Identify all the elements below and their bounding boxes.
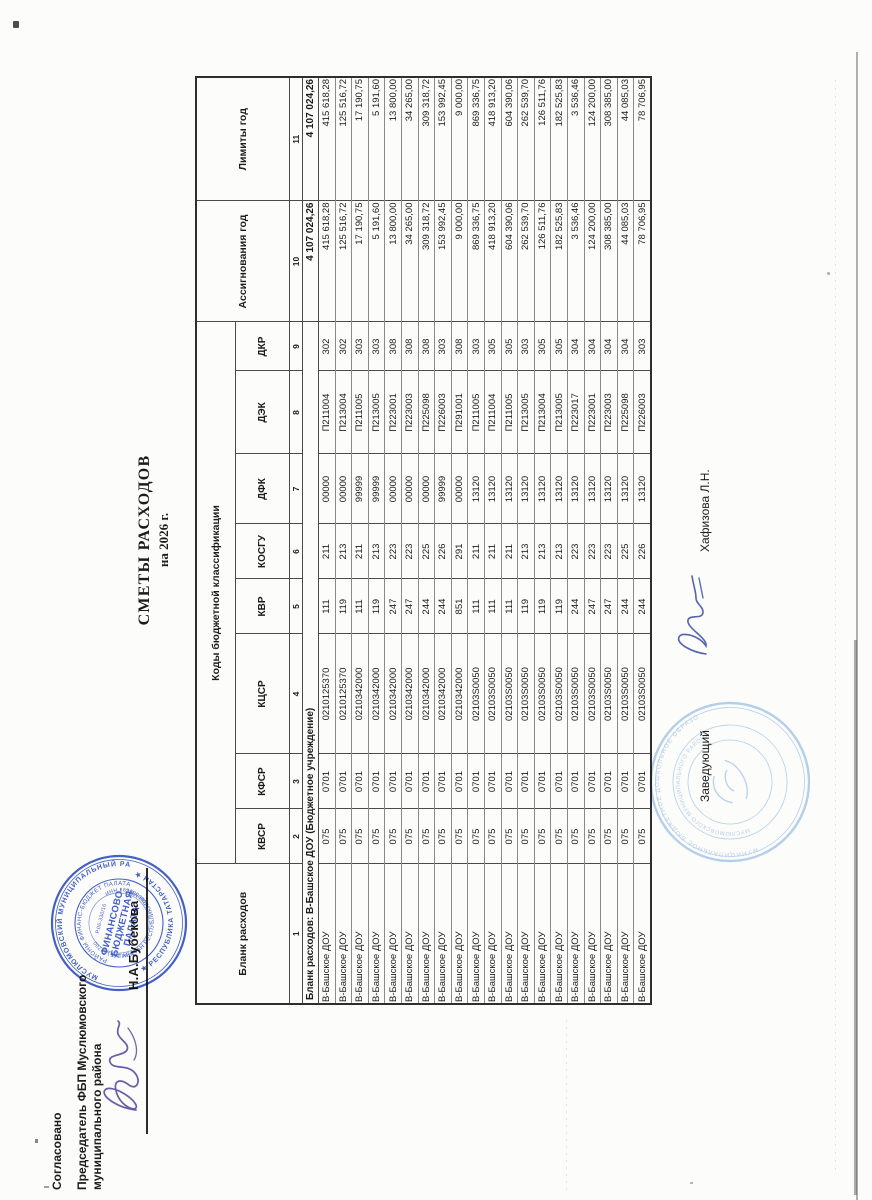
table-cell: 247: [601, 579, 618, 634]
document-title-block: СМЕТЫ РАСХОДОВ на 2026 г.: [136, 425, 172, 655]
table-cell: 3 536,46: [567, 77, 584, 201]
table-cell: 302: [319, 322, 336, 371]
table-cell: 305: [501, 322, 518, 371]
table-cell: 0701: [435, 754, 452, 809]
table-cell: 0701: [501, 754, 518, 809]
table-cell: 02103S0050: [518, 634, 535, 754]
table-row: В-Башское ДОУ075070102103S00502472231312…: [601, 77, 618, 1004]
table-cell: 075: [319, 809, 336, 864]
table-cell: 247: [385, 579, 402, 634]
table-row: В-Башское ДОУ075070102103420002442269999…: [435, 77, 452, 1004]
table-cell: П213004: [335, 371, 352, 454]
table-cell: 213: [518, 524, 535, 579]
table-cell: 34 265,00: [401, 77, 418, 201]
table-cell: П223001: [385, 371, 402, 454]
table-cell: 075: [518, 809, 535, 864]
column-header-limit: Лимиты год: [196, 77, 290, 201]
table-cell: 304: [617, 322, 634, 371]
group-header-label: Бланк расходов: В-Башское ДОУ (Бюджетное…: [303, 322, 319, 1004]
table-cell: 075: [484, 809, 501, 864]
table-cell: В-Башское ДОУ: [584, 864, 601, 1004]
table-cell: 111: [484, 579, 501, 634]
table-row: В-Башское ДОУ075070102103420008512910000…: [451, 77, 468, 1004]
table-cell: 075: [335, 809, 352, 864]
table-cell: П223003: [401, 371, 418, 454]
table-cell: 119: [335, 579, 352, 634]
table-cell: 182 525,83: [551, 77, 568, 201]
table-cell: 119: [518, 579, 535, 634]
table-cell: 211: [501, 524, 518, 579]
scan-speck: [35, 1139, 38, 1143]
table-cell: 00000: [319, 454, 336, 524]
table-cell: 223: [567, 524, 584, 579]
table-cell: П211005: [501, 371, 518, 454]
codes-group-header: Коды бюджетной классификации: [196, 322, 236, 864]
table-cell: В-Башское ДОУ: [501, 864, 518, 1004]
table-cell: П223001: [584, 371, 601, 454]
table-cell: 0701: [551, 754, 568, 809]
table-cell: 308 385,00: [601, 77, 618, 201]
table-cell: 213: [368, 524, 385, 579]
table-cell: П225098: [418, 371, 435, 454]
table-cell: 00000: [451, 454, 468, 524]
column-number: 1: [290, 864, 303, 1004]
table-cell: 02103S0050: [484, 634, 501, 754]
table-row: В-Башское ДОУ075070102101253701192130000…: [335, 77, 352, 1004]
table-cell: 225: [617, 524, 634, 579]
table-cell: 308: [401, 322, 418, 371]
table-row: В-Башское ДОУ075070102103S00501112111312…: [501, 77, 518, 1004]
table-cell: 075: [401, 809, 418, 864]
table-cell: 124 200,00: [584, 77, 601, 201]
table-cell: П211005: [352, 371, 369, 454]
table-cell: 5 191,60: [368, 201, 385, 322]
column-number: 11: [290, 77, 303, 201]
table-cell: В-Башское ДОУ: [335, 864, 352, 1004]
table-cell: П223017: [567, 371, 584, 454]
table-cell: 78 706,95: [634, 201, 651, 322]
table-row: В-Башское ДОУ075070102103S00501112111312…: [468, 77, 485, 1004]
table-cell: 262 539,70: [518, 201, 535, 322]
table-cell: 075: [385, 809, 402, 864]
scan-dust-line: [835, 80, 836, 1170]
table-cell: В-Башское ДОУ: [601, 864, 618, 1004]
table-cell: П226003: [634, 371, 651, 454]
table-cell: 44 085,03: [617, 77, 634, 201]
table-cell: 0701: [451, 754, 468, 809]
table-row: В-Башское ДОУ075070102101253701112110000…: [319, 77, 336, 1004]
table-cell: 0701: [418, 754, 435, 809]
table-cell: 303: [368, 322, 385, 371]
table-cell: 0701: [484, 754, 501, 809]
table-cell: П213005: [518, 371, 535, 454]
table-cell: 223: [601, 524, 618, 579]
table-cell: 99999: [368, 454, 385, 524]
table-cell: 247: [401, 579, 418, 634]
table-cell: 851: [451, 579, 468, 634]
table-cell: 0210342000: [435, 634, 452, 754]
table-cell: 126 511,76: [534, 77, 551, 201]
table-cell: В-Башское ДОУ: [551, 864, 568, 1004]
table-cell: 075: [368, 809, 385, 864]
table-cell: 3 536,46: [567, 201, 584, 322]
table-cell: 262 539,70: [518, 77, 535, 201]
table-cell: 075: [451, 809, 468, 864]
table-cell: 00000: [418, 454, 435, 524]
table-cell: 111: [501, 579, 518, 634]
table-cell: 02103S0050: [584, 634, 601, 754]
dou-round-stamp-icon: МУНИЦИПАЛЬНОЕ БЮДЖЕТНОЕ ДОШКОЛЬНОЕ ОБРАЗ…: [646, 698, 814, 866]
footer-position-label: Заведующий: [698, 730, 712, 802]
column-number: 10: [290, 201, 303, 322]
table-cell: 13120: [534, 454, 551, 524]
table-cell: 291: [451, 524, 468, 579]
table-cell: 02103S0050: [534, 634, 551, 754]
table-cell: 244: [418, 579, 435, 634]
table-row: В-Башское ДОУ075070102103420002442250000…: [418, 77, 435, 1004]
table-cell: 244: [567, 579, 584, 634]
table-cell: 304: [567, 322, 584, 371]
table-cell: 13120: [484, 454, 501, 524]
table-row: В-Башское ДОУ075070102103S00502442251312…: [617, 77, 634, 1004]
table-cell: 34 265,00: [401, 201, 418, 322]
table-cell: 075: [534, 809, 551, 864]
column-number: 6: [290, 524, 303, 579]
table-cell: 0210342000: [418, 634, 435, 754]
table-row: В-Башское ДОУ075070102103S00501192131312…: [551, 77, 568, 1004]
table-cell: 13120: [501, 454, 518, 524]
table-cell: 303: [435, 322, 452, 371]
table-cell: 075: [468, 809, 485, 864]
column-number: 5: [290, 579, 303, 634]
table-cell: 13120: [634, 454, 651, 524]
table-cell: 213: [551, 524, 568, 579]
table-cell: В-Башское ДОУ: [385, 864, 402, 1004]
table-cell: 303: [352, 322, 369, 371]
table-cell: 0701: [352, 754, 369, 809]
table-cell: 308 385,00: [601, 201, 618, 322]
table-cell: 13 800,00: [385, 201, 402, 322]
table-cell: 075: [418, 809, 435, 864]
table-cell: В-Башское ДОУ: [319, 864, 336, 1004]
table-cell: 075: [352, 809, 369, 864]
column-header-assign: Ассигнования год: [196, 201, 290, 322]
table-cell: В-Башское ДОУ: [484, 864, 501, 1004]
table-cell: 303: [634, 322, 651, 371]
scan-dust-line: [566, 1020, 567, 1190]
column-header-kvr: КВР: [236, 579, 290, 634]
table-cell: 13120: [601, 454, 618, 524]
table-cell: П291001: [451, 371, 468, 454]
scan-edge-shadow: [854, 640, 857, 1195]
table-cell: 869 336,75: [468, 77, 485, 201]
table-cell: 418 913,20: [484, 201, 501, 322]
column-header-dkr: ДКР: [236, 322, 290, 371]
table-cell: 119: [534, 579, 551, 634]
table-cell: 124 200,00: [584, 201, 601, 322]
table-cell: 02103S0050: [551, 634, 568, 754]
table-cell: 119: [368, 579, 385, 634]
table-cell: 0210342000: [451, 634, 468, 754]
table-cell: 303: [518, 322, 535, 371]
table-cell: 02103S0050: [617, 634, 634, 754]
scanned-page: Согласовано Председатель ФБП Муслюмовско…: [0, 0, 872, 1200]
table-cell: 226: [435, 524, 452, 579]
table-cell: 02103S0050: [601, 634, 618, 754]
table-cell: 17 190,75: [352, 201, 369, 322]
table-cell: В-Башское ДОУ: [617, 864, 634, 1004]
group-total-assignments: 4 107 024,26: [303, 201, 319, 322]
column-number: 8: [290, 371, 303, 454]
table-row: В-Башское ДОУ075070102103420002472230000…: [401, 77, 418, 1004]
table-cell: 5 191,60: [368, 77, 385, 201]
column-header-blank: Бланк расходов: [196, 864, 290, 1004]
column-number: 9: [290, 322, 303, 371]
table-cell: 13120: [584, 454, 601, 524]
table-cell: 02103S0050: [468, 634, 485, 754]
table-body: Бланк расходов: В-Башское ДОУ (Бюджетное…: [303, 77, 651, 1004]
table-row: В-Башское ДОУ075070102103S00501192131312…: [534, 77, 551, 1004]
column-number: 7: [290, 454, 303, 524]
table-cell: 0210342000: [401, 634, 418, 754]
column-header-kfsr: КФСР: [236, 754, 290, 809]
table-cell: 213: [534, 524, 551, 579]
approval-line: Согласовано: [50, 975, 65, 1190]
table-cell: 305: [484, 322, 501, 371]
scanned-document: Согласовано Председатель ФБП Муслюмовско…: [0, 0, 872, 1200]
table-cell: 302: [335, 322, 352, 371]
table-cell: 00000: [385, 454, 402, 524]
table-cell: П213005: [551, 371, 568, 454]
table-cell: 225: [418, 524, 435, 579]
table-cell: 075: [567, 809, 584, 864]
table-cell: 308: [385, 322, 402, 371]
scan-speck: [827, 272, 830, 275]
table-cell: 244: [435, 579, 452, 634]
table-cell: 111: [468, 579, 485, 634]
table-cell: 99999: [435, 454, 452, 524]
table-cell: П211004: [319, 371, 336, 454]
table-cell: 0701: [468, 754, 485, 809]
column-header-dfk: ДФК: [236, 454, 290, 524]
table-cell: 0701: [534, 754, 551, 809]
table-cell: 119: [551, 579, 568, 634]
table-cell: П213004: [534, 371, 551, 454]
scan-speck: [13, 21, 19, 28]
table-cell: 075: [617, 809, 634, 864]
table-cell: 415 618,28: [319, 77, 336, 201]
table-row: В-Башское ДОУ075070102103S00501112111312…: [484, 77, 501, 1004]
column-number: 3: [290, 754, 303, 809]
table-cell: В-Башское ДОУ: [567, 864, 584, 1004]
table-cell: 0701: [401, 754, 418, 809]
footer-signer-name: Хафизова Л.Н.: [698, 469, 712, 552]
table-cell: 869 336,75: [468, 201, 485, 322]
table-cell: 223: [401, 524, 418, 579]
table-cell: 305: [534, 322, 551, 371]
table-cell: В-Башское ДОУ: [352, 864, 369, 1004]
table-row: В-Башское ДОУ075070102103420002472230000…: [385, 77, 402, 1004]
table-cell: 304: [584, 322, 601, 371]
table-cell: 0210125370: [335, 634, 352, 754]
table-cell: 0210125370: [319, 634, 336, 754]
table-cell: 125 516,72: [335, 201, 352, 322]
document-subtitle: на 2026 г.: [156, 425, 172, 655]
table-cell: 075: [551, 809, 568, 864]
table-cell: 075: [501, 809, 518, 864]
table-cell: 211: [484, 524, 501, 579]
table-cell: 211: [352, 524, 369, 579]
table-cell: 0701: [335, 754, 352, 809]
column-number: 2: [290, 809, 303, 864]
table-cell: 13120: [567, 454, 584, 524]
table-cell: 44 085,03: [617, 201, 634, 322]
table-cell: 223: [385, 524, 402, 579]
table-cell: 244: [634, 579, 651, 634]
table-cell: 125 516,72: [335, 77, 352, 201]
table-cell: 9 000,00: [451, 77, 468, 201]
scan-speck: [44, 1186, 49, 1188]
table-cell: 303: [468, 322, 485, 371]
table-cell: 13120: [468, 454, 485, 524]
table-cell: 99999: [352, 454, 369, 524]
table-cell: 126 511,76: [534, 201, 551, 322]
table-cell: 0701: [601, 754, 618, 809]
column-header-kcsr: КЦСР: [236, 634, 290, 754]
table-cell: 244: [617, 579, 634, 634]
table-cell: 13 800,00: [385, 77, 402, 201]
table-cell: П211005: [468, 371, 485, 454]
table-cell: П223003: [601, 371, 618, 454]
approval-signature: [90, 1015, 148, 1120]
table-cell: В-Башское ДОУ: [418, 864, 435, 1004]
scan-speck: [690, 1182, 693, 1184]
column-header-kvsr: КВСР: [236, 809, 290, 864]
table-row: В-Башское ДОУ075070102103420001192139999…: [368, 77, 385, 1004]
table-cell: 9 000,00: [451, 201, 468, 322]
table-cell: 604 390,06: [501, 77, 518, 201]
table-cell: В-Башское ДОУ: [401, 864, 418, 1004]
table-cell: П226003: [435, 371, 452, 454]
table-cell: 153 992,45: [435, 77, 452, 201]
table-cell: 02103S0050: [567, 634, 584, 754]
table-cell: 182 525,83: [551, 201, 568, 322]
table-cell: 153 992,45: [435, 201, 452, 322]
column-number: 4: [290, 634, 303, 754]
table-cell: 0701: [385, 754, 402, 809]
table-cell: 0701: [518, 754, 535, 809]
table-cell: 0210342000: [368, 634, 385, 754]
table-cell: П213005: [368, 371, 385, 454]
table-cell: 211: [468, 524, 485, 579]
table-cell: 213: [335, 524, 352, 579]
table-cell: 226: [634, 524, 651, 579]
table-cell: 111: [352, 579, 369, 634]
table-cell: 604 390,06: [501, 201, 518, 322]
table-cell: 304: [601, 322, 618, 371]
table-cell: 0701: [617, 754, 634, 809]
table-cell: 0701: [584, 754, 601, 809]
table-cell: 418 913,20: [484, 77, 501, 201]
fbp-round-stamp-icon: МУСЛЮМОВСКИЙ МУНИЦИПАЛЬНЫЙ РАЙОН ★ РЕСПУ…: [48, 852, 190, 994]
table-cell: 308: [451, 322, 468, 371]
table-cell: В-Башское ДОУ: [368, 864, 385, 1004]
group-total-limits: 4 107 024,26: [303, 77, 319, 201]
table-cell: 223: [584, 524, 601, 579]
table-cell: 0701: [567, 754, 584, 809]
footer-signature: [666, 572, 718, 664]
table-cell: В-Башское ДОУ: [534, 864, 551, 1004]
table-row: В-Башское ДОУ075070102103S00502442231312…: [567, 77, 584, 1004]
table-row: В-Башское ДОУ075070102103420001112119999…: [352, 77, 369, 1004]
document-title: СМЕТЫ РАСХОДОВ: [136, 425, 154, 655]
table-cell: В-Башское ДОУ: [435, 864, 452, 1004]
table-cell: 308: [418, 322, 435, 371]
table-cell: 00000: [335, 454, 352, 524]
table-cell: 247: [584, 579, 601, 634]
table-cell: 13120: [518, 454, 535, 524]
table-cell: 075: [601, 809, 618, 864]
table-cell: 415 618,28: [319, 201, 336, 322]
table-cell: 111: [319, 579, 336, 634]
budget-table: Бланк расходов Коды бюджетной классифика…: [195, 76, 652, 1005]
table-cell: 0701: [319, 754, 336, 809]
table-row: В-Башское ДОУ075070102103S00501192131312…: [518, 77, 535, 1004]
table-row: В-Башское ДОУ075070102103S00502472231312…: [584, 77, 601, 1004]
table-cell: 13120: [617, 454, 634, 524]
table-cell: П211004: [484, 371, 501, 454]
table-cell: 305: [551, 322, 568, 371]
approval-line: Председатель ФБП Муслюмовского: [75, 975, 90, 1190]
table-cell: П225098: [617, 371, 634, 454]
table-cell: 211: [319, 524, 336, 579]
table-cell: 0210342000: [352, 634, 369, 754]
table-cell: 075: [435, 809, 452, 864]
table-cell: 02103S0050: [501, 634, 518, 754]
table-cell: 0210342000: [385, 634, 402, 754]
table-cell: 075: [584, 809, 601, 864]
table-cell: В-Башское ДОУ: [451, 864, 468, 1004]
table-cell: 78 706,95: [634, 77, 651, 201]
table-cell: В-Башское ДОУ: [468, 864, 485, 1004]
table-cell: 0701: [368, 754, 385, 809]
column-header-dek: ДЭК: [236, 371, 290, 454]
table-cell: 309 318,72: [418, 77, 435, 201]
group-header-row: Бланк расходов: В-Башское ДОУ (Бюджетное…: [303, 77, 319, 1004]
table-cell: 13120: [551, 454, 568, 524]
table-cell: 00000: [401, 454, 418, 524]
table-cell: 17 190,75: [352, 77, 369, 201]
table-cell: В-Башское ДОУ: [634, 864, 651, 1004]
table-cell: 309 318,72: [418, 201, 435, 322]
table-cell: В-Башское ДОУ: [518, 864, 535, 1004]
column-header-kosgu: КОСГУ: [236, 524, 290, 579]
